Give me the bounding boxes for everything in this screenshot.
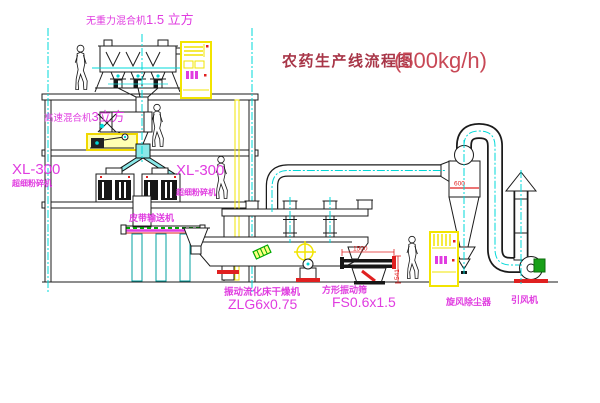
label-mill-right-model: XL-300 xyxy=(176,162,224,179)
label-cyclone: 旋风除尘器 xyxy=(445,296,492,307)
mixer-discharge-valves xyxy=(108,72,168,88)
dryer-exhaust-duct xyxy=(272,171,441,213)
dim-sieve-length: 1500 xyxy=(353,246,368,253)
mill-left-drawing xyxy=(94,168,136,202)
label-belt-conveyor: 皮带输送机 xyxy=(128,212,174,223)
label-fan: 引风机 xyxy=(511,294,538,305)
gravity-mixer-drawing xyxy=(92,40,188,114)
label-dryer-model: ZLG6x0.75 xyxy=(228,296,297,312)
fluid-bed-dryer-drawing xyxy=(182,200,373,282)
label-high-speed-mixer: 高速混合机3立方 xyxy=(44,109,125,124)
person-figure xyxy=(152,104,163,146)
label-sieve-model: FS0.6x1.5 xyxy=(332,294,396,310)
label-gravity-mixer: 无重力混合机1.5 立方 xyxy=(86,12,194,27)
diagram-title-capacity: (500kg/h) xyxy=(394,48,487,73)
person-figure xyxy=(75,45,87,89)
dryer-riser-pipes xyxy=(283,216,337,237)
label-mill-left-model: XL-300 xyxy=(12,161,60,178)
mixer-drive-unit xyxy=(87,134,137,150)
flow-diagram-canvas: 农药生产线流程图 (500kg/h) 无重力混合机1.5 立方 高速混合机3立方… xyxy=(0,0,600,403)
label-mill-right-name: 超细粉碎机 xyxy=(175,187,216,197)
control-cabinet-lower xyxy=(430,232,458,286)
dim-sieve-height: 541 xyxy=(394,269,401,280)
dim-cyclone-diameter: 600 xyxy=(454,181,465,188)
label-mill-left-name: 超细粉碎机 xyxy=(11,178,52,188)
control-cabinet-upper xyxy=(181,42,211,98)
dryer-dome-ports xyxy=(245,200,374,209)
person-figure xyxy=(407,236,418,278)
